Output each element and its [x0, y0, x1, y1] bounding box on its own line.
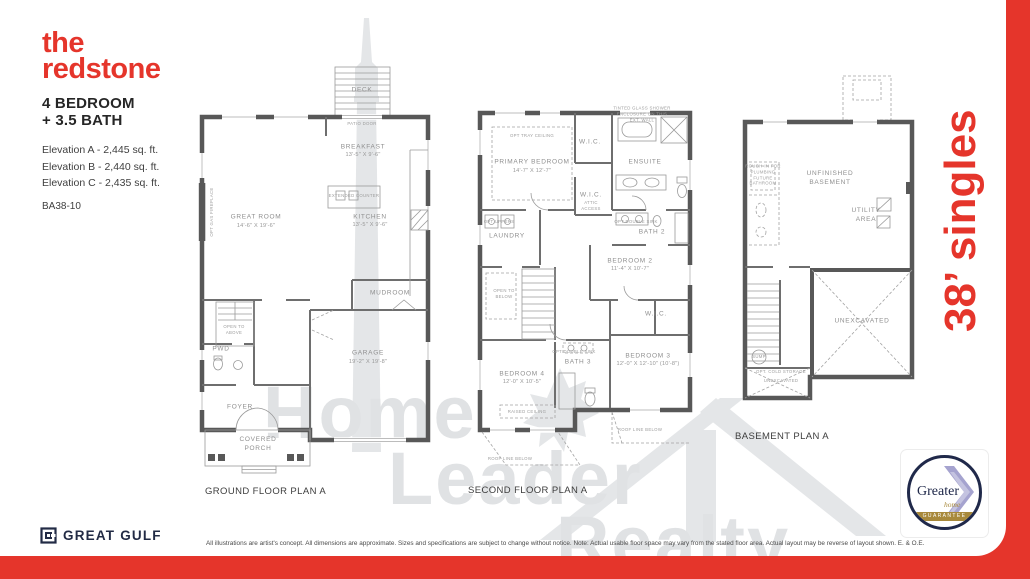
- dims-kitchen: 13'-5" X 9'-6": [352, 222, 387, 230]
- label-attic-access: ATTIC ACCESS: [578, 200, 604, 212]
- elevation-list: Elevation A - 2,445 sq. ft. Elevation B …: [42, 142, 160, 192]
- basement-drawing: [735, 70, 925, 430]
- elevation-c: Elevation C - 2,435 sq. ft.: [42, 175, 160, 192]
- label-mudroom: MUDROOM: [370, 290, 410, 299]
- great-gulf-logo: GREAT GULF: [40, 527, 162, 544]
- label-great-room: GREAT ROOM: [231, 214, 282, 223]
- guarantee-badge: Greater home GUARANTEE: [901, 450, 988, 537]
- subtitle-line2: + 3.5 BATH: [42, 112, 160, 129]
- label-deck: DECK: [352, 87, 373, 96]
- dims-bedroom-2: 11'-4" X 10'-7": [611, 266, 649, 274]
- elevation-b: Elevation B - 2,440 sq. ft.: [42, 159, 160, 176]
- label-covered-porch: COVERED PORCH: [234, 436, 282, 454]
- label-raised-ceiling: RAISED CEILING: [508, 409, 547, 415]
- label-bedroom-4: BEDROOM 4: [499, 371, 544, 380]
- label-opt-gas-fireplace: OPT GAS FIREPLACE: [209, 187, 215, 236]
- label-pwd: PWD: [212, 346, 229, 355]
- label-opt-uppers: OPT UPPERS: [484, 219, 515, 225]
- great-gulf-wordmark: GREAT GULF: [63, 528, 162, 543]
- label-opt-tray-ceiling: OPT TRAY CEILING: [510, 133, 554, 139]
- dims-great-room: 14'-6" X 19'-6": [237, 223, 275, 231]
- dims-bedroom-3: 12'-0" X 12'-10" (10'-8"): [617, 361, 680, 369]
- label-roof-line-below-left: ROOF LINE BELOW: [488, 456, 532, 462]
- label-ensuite: ENSUITE: [628, 159, 661, 168]
- label-opt-cold-storage: OPT. COLD STORAGE: [756, 369, 806, 375]
- page-title: the redstone: [42, 30, 160, 82]
- label-sump: SUMP: [752, 354, 766, 360]
- disclaimer: All illustrations are artist's concept. …: [206, 540, 1002, 547]
- label-bedroom-2: BEDROOM 2: [607, 258, 652, 267]
- model-code: BA38-10: [42, 201, 160, 212]
- badge-circle: Greater home GUARANTEE: [907, 455, 982, 530]
- label-patio-door: PATIO DOOR: [347, 121, 376, 127]
- label-wic-3: W.I.C.: [645, 311, 667, 320]
- dims-breakfast: 13'-5" X 9'-6": [345, 152, 380, 160]
- label-open-to-above: OPEN TO ABOVE: [217, 324, 251, 336]
- label-laundry: LAUNDRY: [489, 233, 525, 242]
- label-foyer: FOYER: [227, 404, 253, 413]
- label-bath-3: BATH 3: [565, 359, 591, 368]
- label-unexcavated: UNEXCAVATED: [834, 318, 889, 327]
- label-open-to-below: OPEN TO BELOW: [489, 288, 519, 300]
- caption-basement: BASEMENT PLAN A: [735, 431, 829, 442]
- header-block: the redstone 4 BEDROOM + 3.5 BATH Elevat…: [42, 30, 160, 212]
- subtitle: 4 BEDROOM + 3.5 BATH: [42, 95, 160, 129]
- label-opt-double-sink-bath3: OPT DOUBLE SINK: [552, 349, 595, 355]
- elevation-a: Elevation A - 2,445 sq. ft.: [42, 142, 160, 159]
- subtitle-line1: 4 BEDROOM: [42, 95, 160, 112]
- title-line2: redstone: [42, 56, 160, 82]
- label-unfinished-basement: UNFINISHED BASEMENT: [801, 170, 859, 188]
- dims-primary-bedroom: 14'-7" X 12'-7": [513, 168, 551, 176]
- ground-floor-drawing: [178, 58, 448, 478]
- great-gulf-icon: [40, 527, 57, 544]
- label-extended-counter: EXTENDED COUNTER: [329, 193, 380, 199]
- badge-sub: home: [944, 500, 960, 509]
- label-wic-1: W.I.C.: [579, 139, 601, 148]
- label-kitchen: KITCHEN: [353, 214, 386, 223]
- label-roof-line-below-right: ROOF LINE BELOW: [618, 427, 662, 433]
- side-banner: 38’ singles: [936, 14, 986, 332]
- label-unexcavated-small: UNEXCAVATED: [764, 378, 799, 384]
- note-tinted-glass: TINTED GLASS SHOWER ENCLOSURE ON THIS EX…: [611, 105, 673, 122]
- watermark-word-realty: Realty: [556, 506, 790, 556]
- flyer-page: Home Leader Realty the redstone 4 BEDROO…: [0, 0, 1030, 579]
- note-rough-in: ROUGH-IN FOR PLUMBING FUTURE BATHROOM: [742, 163, 784, 186]
- dims-garage: 19'-2" X 19'-8": [349, 359, 387, 367]
- caption-second-floor: SECOND FLOOR PLAN A: [468, 485, 588, 496]
- label-bedroom-3: BEDROOM 3: [625, 353, 670, 362]
- badge-brand: Greater: [910, 484, 966, 500]
- label-breakfast: BREAKFAST: [341, 144, 386, 153]
- caption-ground-floor: GROUND FLOOR PLAN A: [205, 486, 326, 497]
- label-primary-bedroom: PRIMARY BEDROOM: [494, 159, 569, 168]
- label-opt-double-sink-bath2: OPT DOUBLE SINK: [614, 219, 657, 225]
- label-wic-2: W.I.C.: [580, 192, 602, 201]
- label-garage: GARAGE: [352, 350, 384, 359]
- label-bath-2: BATH 2: [639, 229, 665, 238]
- dims-bedroom-4: 12'-0" X 10'-5": [503, 379, 541, 387]
- badge-banner: GUARANTEE: [915, 512, 974, 521]
- content-area: Home Leader Realty the redstone 4 BEDROO…: [0, 0, 1006, 556]
- label-utility-area: UTILITY AREA: [849, 207, 883, 225]
